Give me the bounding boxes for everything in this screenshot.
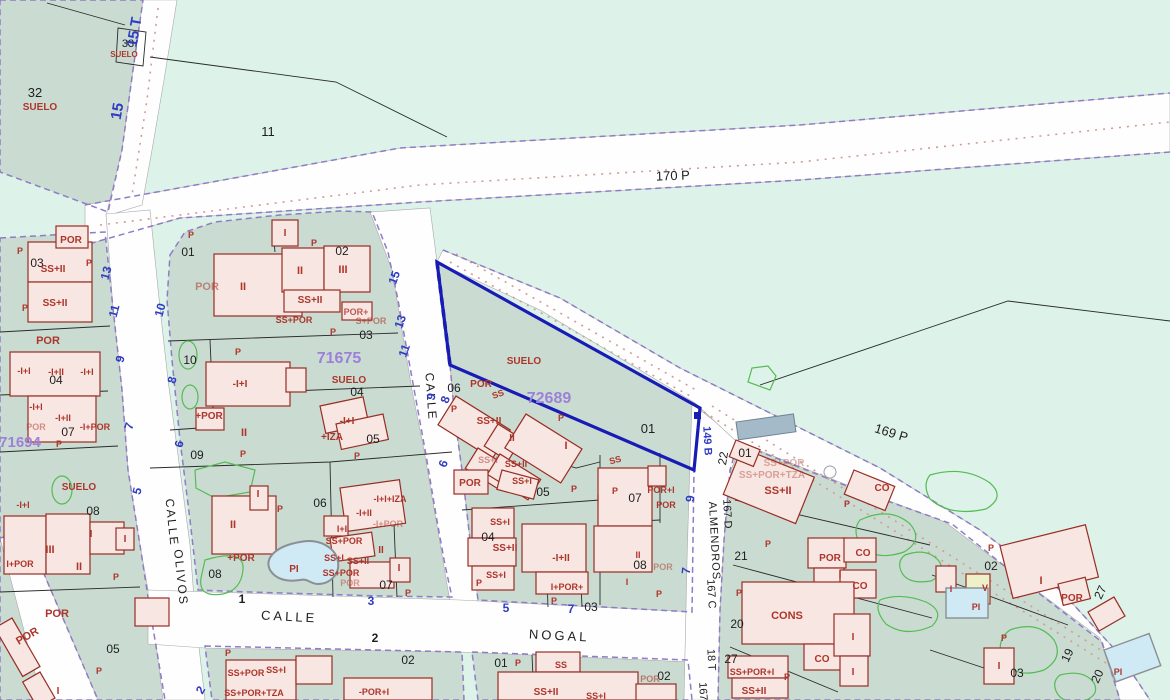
bld-ssii: SS+II bbox=[534, 687, 559, 698]
bld-sspor: SS+POR bbox=[276, 315, 313, 325]
bld-i: I bbox=[998, 661, 1001, 672]
p-mark: P bbox=[235, 347, 241, 357]
bld-ii: II bbox=[240, 281, 246, 293]
bld-i: I bbox=[124, 534, 127, 545]
selected-edge: 149 B bbox=[700, 426, 714, 456]
bld-i: I bbox=[284, 228, 287, 239]
p-mark: P bbox=[96, 666, 102, 676]
bld: -I+I bbox=[80, 367, 93, 377]
parcel-04s: 04 bbox=[481, 530, 495, 544]
bld-ii: II bbox=[378, 545, 384, 556]
parcel-01r: 01 bbox=[738, 446, 752, 460]
bld: SS+POR+I bbox=[730, 667, 775, 677]
bld-co: CO bbox=[853, 581, 868, 592]
km-167d: 167 D bbox=[720, 499, 734, 529]
bld-por: POR bbox=[656, 500, 676, 510]
bld-porf: POR bbox=[340, 578, 360, 588]
bld-ii: II bbox=[635, 550, 640, 560]
parcel-02w: 02 bbox=[401, 653, 415, 667]
bld-ss: SS bbox=[555, 660, 567, 670]
parcel-11: 11 bbox=[261, 124, 275, 139]
p-mark: P bbox=[784, 672, 790, 682]
bld-v: V bbox=[982, 583, 988, 593]
addr: 2 bbox=[372, 631, 379, 645]
bld-ii: II bbox=[509, 433, 515, 444]
parcel-03: 03 bbox=[359, 328, 373, 342]
parcel-05: 05 bbox=[366, 432, 380, 446]
bld-i: I bbox=[90, 529, 93, 540]
bld: POR+I bbox=[647, 485, 674, 495]
bld: -I+POR bbox=[80, 422, 111, 432]
parcel-05s: 05 bbox=[536, 485, 550, 499]
parcel-06s: 06 bbox=[447, 381, 461, 395]
bld: -I+II bbox=[552, 553, 570, 564]
p-mark: P bbox=[277, 504, 283, 514]
p-mark: P bbox=[188, 230, 194, 240]
p-mark: P bbox=[515, 658, 521, 668]
p-mark: P bbox=[22, 303, 28, 313]
p-mark: P bbox=[240, 449, 246, 459]
parcel-32: 32 bbox=[28, 85, 42, 100]
bld-ii3: I+I bbox=[337, 524, 347, 534]
addr-15: 15 bbox=[108, 102, 128, 121]
bld-i: I bbox=[950, 584, 953, 594]
bld: I+POR bbox=[6, 559, 34, 569]
parcel-02: 02 bbox=[335, 244, 349, 258]
parcel-01: 01 bbox=[181, 245, 195, 259]
km-167c: 167 C bbox=[704, 579, 718, 609]
p-mark: P bbox=[656, 589, 662, 599]
bld-porf: POR bbox=[653, 562, 673, 572]
suelo-08a: SUELO bbox=[62, 482, 97, 493]
bld-ipor: -I+POR bbox=[373, 519, 404, 529]
bld-ssii: SS+II bbox=[493, 543, 518, 554]
parcel-07a: 07 bbox=[61, 425, 75, 439]
addr: 3 bbox=[368, 594, 375, 608]
bld-ssii: SS+II bbox=[505, 459, 527, 469]
p-mark: P bbox=[612, 486, 618, 496]
bld-ii: II bbox=[297, 265, 303, 277]
parcel-09: 09 bbox=[190, 448, 204, 462]
parcel-21: 21 bbox=[734, 549, 748, 563]
parcel-04: 04 bbox=[350, 385, 364, 399]
parcel-06: 06 bbox=[313, 496, 327, 510]
bld-ssii: SS+II bbox=[764, 485, 791, 497]
bld-f: SS+POR bbox=[764, 458, 806, 469]
bld: -I+I bbox=[17, 366, 30, 376]
pool-pi-label: PI bbox=[1114, 667, 1123, 677]
p-mark: P bbox=[571, 484, 577, 494]
bld-ssii: SS+II bbox=[41, 264, 66, 275]
p-mark: P bbox=[330, 327, 336, 337]
p-mark: P bbox=[558, 413, 564, 423]
bld-iii2: -I+II bbox=[356, 508, 372, 518]
bld-ssif: SS+I bbox=[478, 455, 498, 465]
bld-i: I bbox=[257, 489, 260, 500]
bld: -I+I bbox=[29, 402, 42, 412]
bld-co: CO bbox=[856, 548, 871, 559]
bld-ii1: -I+I bbox=[233, 379, 248, 390]
parcel-01n: 01 bbox=[494, 656, 508, 670]
bld: -I+II bbox=[55, 413, 71, 423]
bld-sspor2: SS+POR bbox=[323, 568, 360, 578]
bld-ssi: SS+I bbox=[512, 476, 532, 486]
bld-ssii: SS+II bbox=[347, 556, 369, 566]
bld-por: POR bbox=[470, 379, 492, 390]
bld: I+POR+ bbox=[551, 582, 584, 592]
bld-ii: II bbox=[76, 561, 82, 573]
p-mark: P bbox=[113, 572, 119, 582]
bld-ssii: SS+II bbox=[477, 416, 502, 427]
bld: SS+POR bbox=[228, 668, 265, 678]
p-mark: P bbox=[1001, 633, 1007, 643]
parcel-07s: 07 bbox=[628, 491, 642, 505]
bld-ssi: SS+I bbox=[324, 553, 344, 563]
p-mark: P bbox=[476, 578, 482, 588]
bld-por: POR bbox=[45, 608, 69, 620]
addr: 1 bbox=[239, 592, 246, 606]
bld-porf: POR bbox=[640, 674, 660, 684]
bld-por: POR bbox=[60, 235, 82, 246]
bld: -I+I bbox=[16, 500, 29, 510]
km-18t: 18 T bbox=[704, 649, 717, 672]
bld-co: CO bbox=[815, 654, 830, 665]
parcel-07: 07 bbox=[379, 578, 393, 592]
bld-i: I bbox=[626, 577, 629, 587]
bld-ssii: SS+II bbox=[742, 686, 767, 697]
p-mark: P bbox=[354, 451, 360, 461]
parcel-08a: 08 bbox=[86, 504, 100, 518]
parcel-03s: 03 bbox=[584, 600, 598, 614]
parcel-04a: 04 bbox=[49, 373, 63, 387]
addr: 22 bbox=[715, 450, 731, 466]
bld-por: POR bbox=[1061, 593, 1083, 604]
suelo-33: SUELO bbox=[110, 50, 138, 59]
bld-porf: POR bbox=[26, 422, 46, 432]
p-mark: P bbox=[988, 543, 994, 553]
street-calle-nogal-1: CALLE bbox=[261, 608, 318, 626]
bld-i: I bbox=[57, 686, 60, 697]
bld-spor: S+POR bbox=[356, 316, 387, 326]
bld-por: POR bbox=[195, 281, 219, 293]
bld-iza: +IZA bbox=[321, 432, 343, 443]
bld-i: I bbox=[398, 563, 401, 574]
bld-f: SS+POR+TZA bbox=[739, 470, 805, 481]
parcel-08: 08 bbox=[208, 567, 222, 581]
bld-ppor: +POR bbox=[227, 553, 255, 564]
bld-por: POR bbox=[459, 478, 481, 489]
p-mark: P bbox=[405, 588, 411, 598]
parcel-05a: 05 bbox=[106, 642, 120, 656]
bld-i: I bbox=[852, 667, 855, 678]
cadastral-map-viewport[interactable]: 32SUELO33SUELO15 T1511170 P169 P01PPORII… bbox=[0, 0, 1170, 700]
p-mark: P bbox=[551, 596, 557, 606]
p-mark: P bbox=[17, 246, 23, 256]
bld-ssii: SS+II bbox=[298, 295, 323, 306]
bld-ssi: SS+I bbox=[486, 570, 506, 580]
bld-por: POR bbox=[819, 553, 841, 564]
parcel-08s: 08 bbox=[633, 558, 647, 572]
parcel-20: 20 bbox=[730, 617, 744, 631]
parcel-03r: 03 bbox=[1010, 666, 1024, 680]
zone-id-72689: 72689 bbox=[527, 390, 572, 407]
bld-cons: CONS bbox=[771, 610, 803, 622]
p-mark: P bbox=[765, 539, 771, 549]
bld-ssi: SS+I bbox=[266, 665, 286, 675]
addr: 7 bbox=[568, 602, 575, 616]
p-mark: P bbox=[56, 439, 62, 449]
suelo-32: SUELO bbox=[23, 102, 58, 113]
bld-ssi: SS+I bbox=[586, 691, 606, 700]
map-canvas[interactable]: 32SUELO33SUELO15 T1511170 P169 P01PPORII… bbox=[0, 0, 1170, 700]
bld: -POR+I bbox=[359, 687, 389, 697]
bld-i: I bbox=[839, 570, 842, 581]
bld-sspor: SS+POR bbox=[326, 536, 363, 546]
bld-ii2: -I+I bbox=[340, 416, 355, 427]
p-mark: P bbox=[736, 588, 742, 598]
pool-pi-label: PI bbox=[972, 602, 981, 612]
bld-ii: II bbox=[230, 519, 236, 531]
parcel-27: 27 bbox=[724, 652, 738, 666]
p-mark: P bbox=[86, 258, 92, 268]
p-mark: P bbox=[451, 404, 457, 414]
km-167h: 167 H bbox=[696, 682, 710, 700]
parcel-10: 10 bbox=[183, 353, 197, 367]
zone-id-71675: 71675 bbox=[317, 350, 362, 367]
p-mark: P bbox=[225, 648, 231, 658]
parcel-02r: 02 bbox=[984, 559, 998, 573]
parcel-01-selected: 01 bbox=[641, 421, 655, 436]
bld-co: CO bbox=[875, 483, 890, 494]
bld-i: I bbox=[564, 440, 567, 452]
bld-ii: II bbox=[241, 427, 247, 439]
bld-ppor: +POR bbox=[195, 411, 223, 422]
bld-ssi: SS+I bbox=[490, 517, 510, 527]
bld-iii: III bbox=[338, 264, 347, 276]
bld-i: I bbox=[597, 493, 600, 503]
bld-iiiza: -I+I+IZA bbox=[373, 494, 407, 504]
pool-pi-label: PI bbox=[289, 564, 299, 575]
bld-iii: III bbox=[45, 544, 54, 556]
bld-i: I bbox=[1039, 575, 1042, 587]
zone-id-71694: 71694 bbox=[0, 434, 42, 451]
p-mark: P bbox=[311, 238, 317, 248]
suelo-72689: SUELO bbox=[507, 356, 542, 367]
bld-i: I bbox=[852, 632, 855, 643]
bld-por: POR bbox=[36, 335, 60, 347]
bld-ssii: SS+II bbox=[43, 298, 68, 309]
bld: SS+POR+TZA bbox=[224, 688, 284, 698]
road-170p-label: 170 P bbox=[656, 167, 690, 183]
street-calle-nogal-2: NOGAL bbox=[529, 626, 590, 644]
p-mark: P bbox=[844, 499, 850, 509]
addr: 5 bbox=[503, 601, 510, 615]
